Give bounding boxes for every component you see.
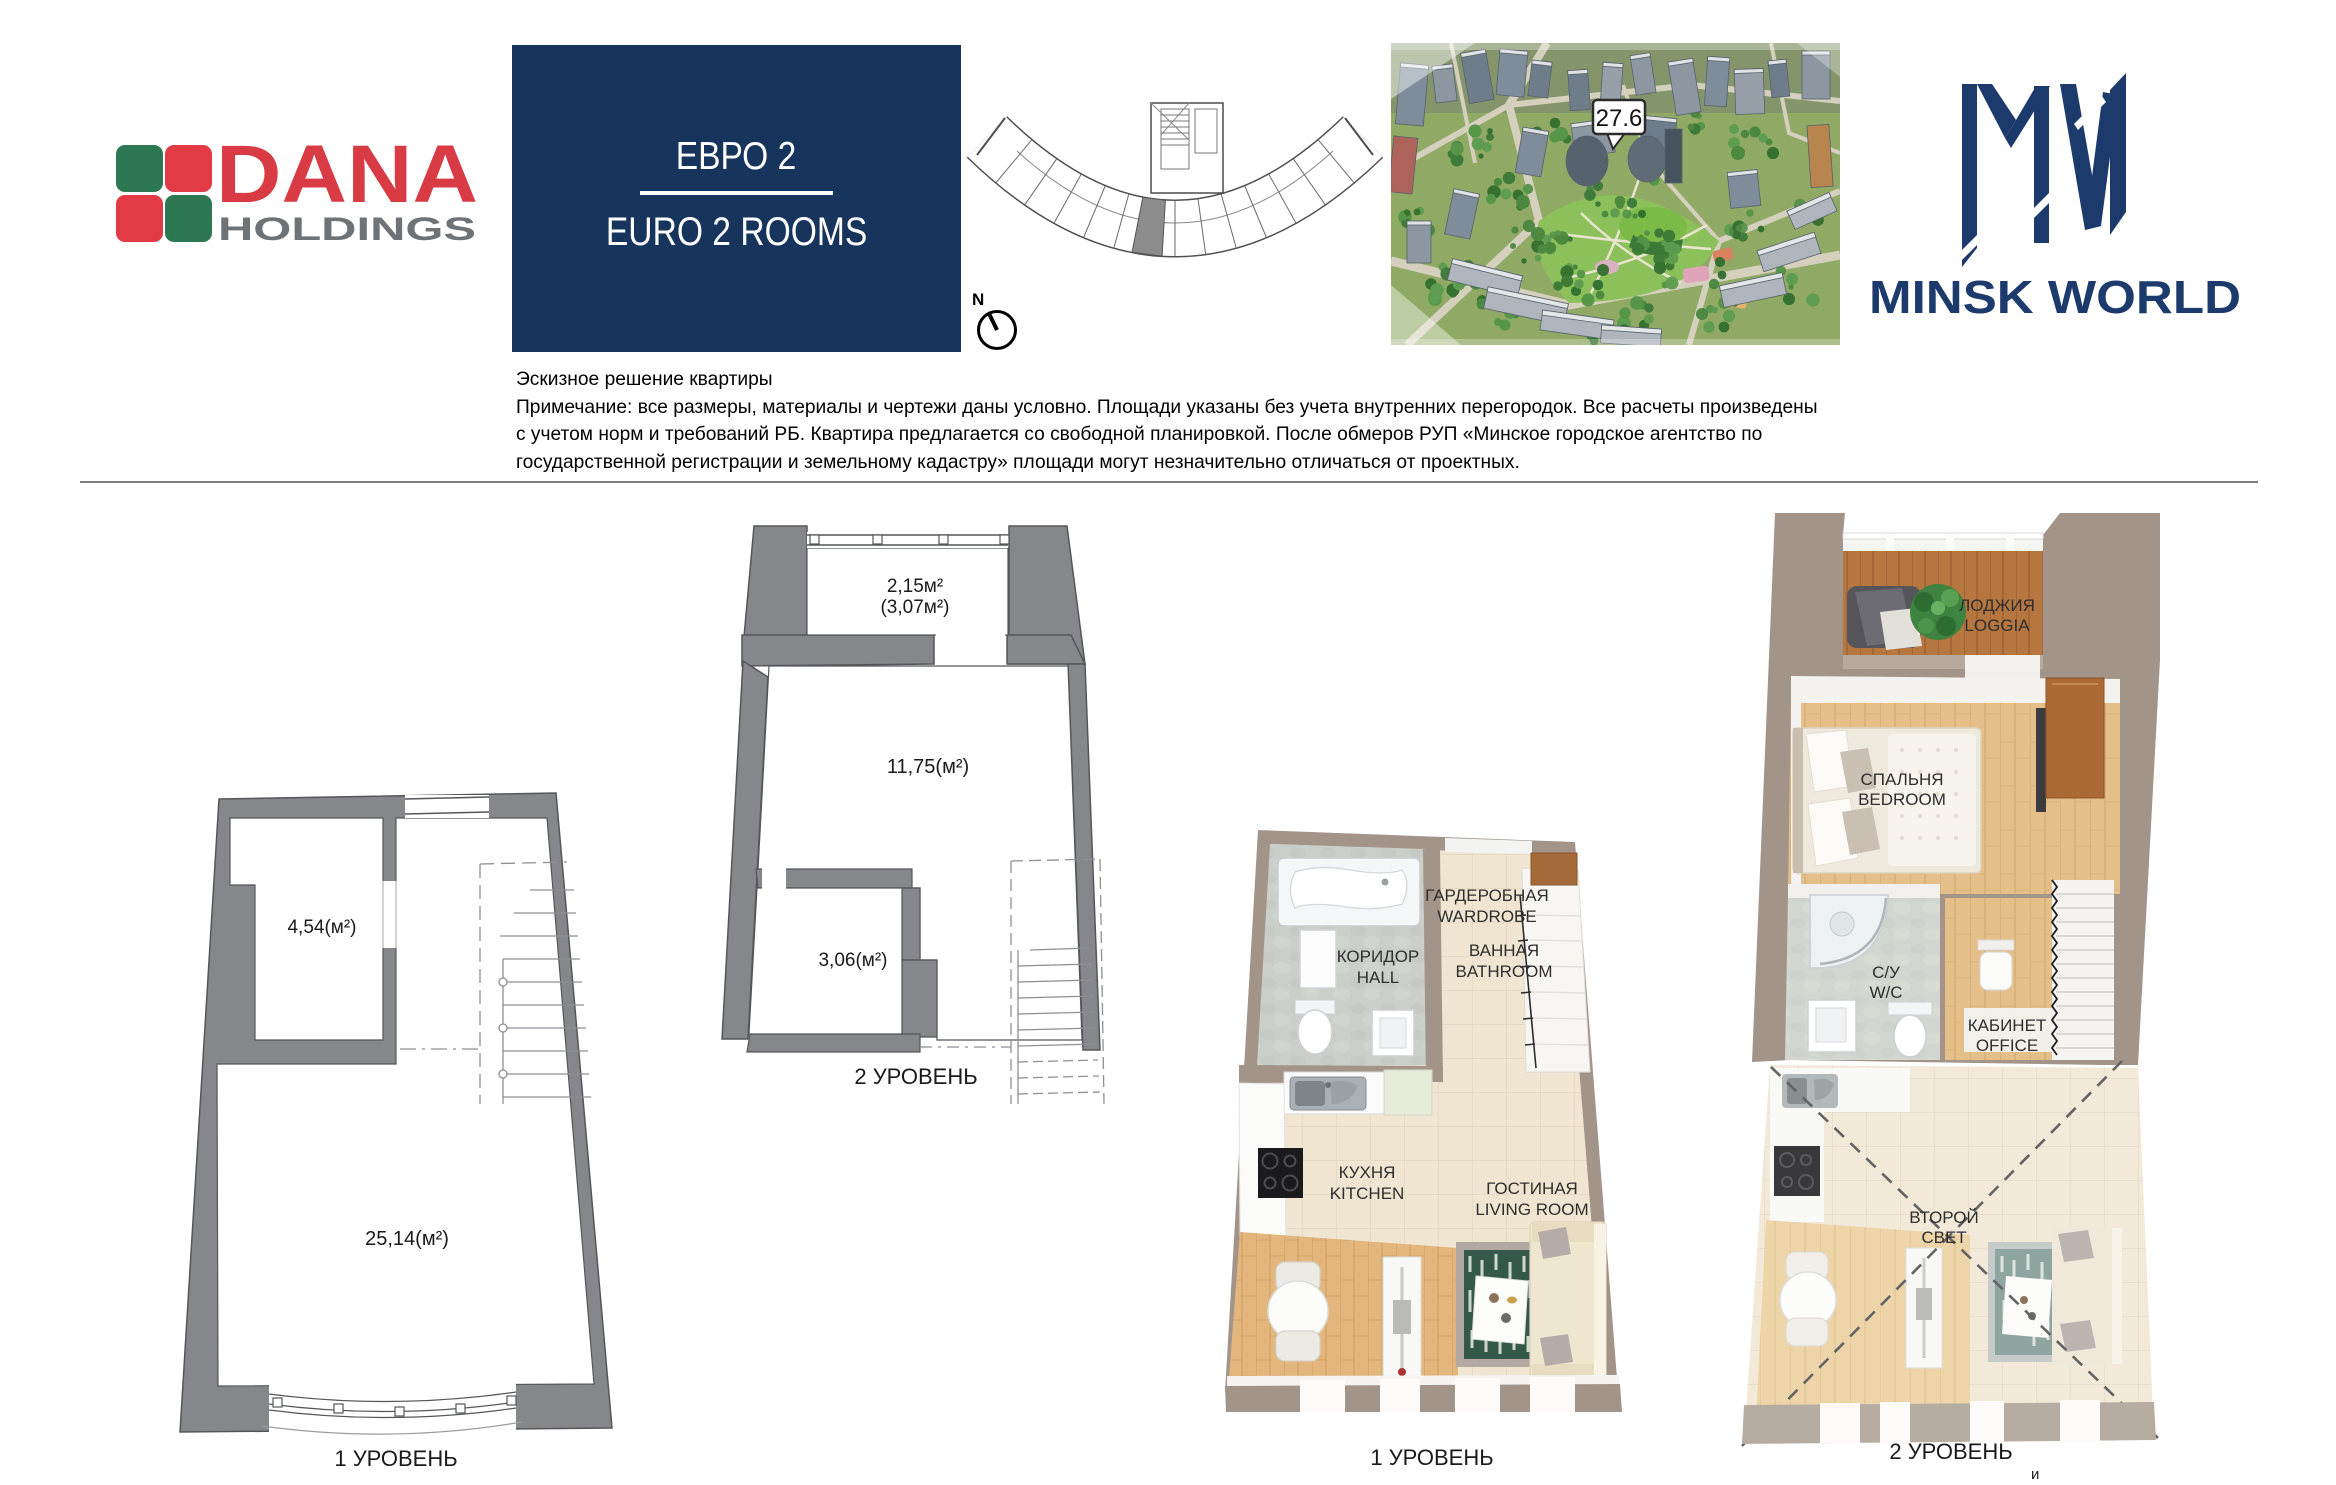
svg-text:ЛОДЖИЯ: ЛОДЖИЯ — [1959, 596, 2035, 615]
svg-text:BEDROOM: BEDROOM — [1858, 790, 1946, 809]
svg-text:HOLDINGS: HOLDINGS — [218, 211, 476, 244]
svg-text:HALL: HALL — [1357, 968, 1400, 987]
svg-text:LIVING ROOM: LIVING ROOM — [1475, 1200, 1588, 1219]
svg-text:OFFICE: OFFICE — [1976, 1036, 2038, 1055]
svg-text:WARDROBE: WARDROBE — [1437, 907, 1537, 926]
svg-text:КОРИДОР: КОРИДОР — [1337, 947, 1420, 966]
svg-text:N: N — [972, 290, 984, 309]
svg-text:25,14(м²): 25,14(м²) — [365, 1228, 449, 1250]
svg-text:2,15м²: 2,15м² — [887, 576, 943, 597]
svg-text:КАБИНЕТ: КАБИНЕТ — [1968, 1016, 2047, 1035]
svg-text:BATHROOM: BATHROOM — [1456, 962, 1553, 981]
svg-text:MINSK WORLD: MINSK WORLD — [1869, 271, 2241, 320]
svg-text:11,75(м²): 11,75(м²) — [887, 756, 969, 778]
svg-text:KITCHEN: KITCHEN — [1330, 1184, 1405, 1203]
svg-text:1 УРОВЕНЬ: 1 УРОВЕНЬ — [334, 1446, 457, 1471]
svg-text:ВАННАЯ: ВАННАЯ — [1469, 941, 1539, 960]
svg-text:1 УРОВЕНЬ: 1 УРОВЕНЬ — [1370, 1445, 1493, 1470]
svg-text:3,06(м²): 3,06(м²) — [818, 950, 887, 971]
svg-text:2 УРОВЕНЬ: 2 УРОВЕНЬ — [854, 1064, 977, 1089]
svg-text:2 УРОВЕНЬ: 2 УРОВЕНЬ — [1889, 1439, 2012, 1464]
svg-text:LOGGIA: LOGGIA — [1964, 616, 2030, 635]
svg-text:С/У: С/У — [1872, 963, 1900, 982]
svg-text:КУХНЯ: КУХНЯ — [1339, 1163, 1396, 1182]
svg-text:СПАЛЬНЯ: СПАЛЬНЯ — [1860, 770, 1943, 789]
svg-text:ГАРДЕРОБНАЯ: ГАРДЕРОБНАЯ — [1425, 886, 1549, 905]
svg-text:W/C: W/C — [1869, 983, 1902, 1002]
svg-text:ГОСТИНАЯ: ГОСТИНАЯ — [1486, 1179, 1578, 1198]
svg-text:DANA: DANA — [216, 144, 478, 220]
svg-text:27.6: 27.6 — [1596, 105, 1643, 132]
svg-text:СВЕТ: СВЕТ — [1921, 1228, 1966, 1247]
svg-text:4,54(м²): 4,54(м²) — [287, 917, 356, 938]
svg-text:ВТОРОЙ: ВТОРОЙ — [1909, 1208, 1978, 1227]
svg-text:(3,07м²): (3,07м²) — [880, 597, 949, 618]
